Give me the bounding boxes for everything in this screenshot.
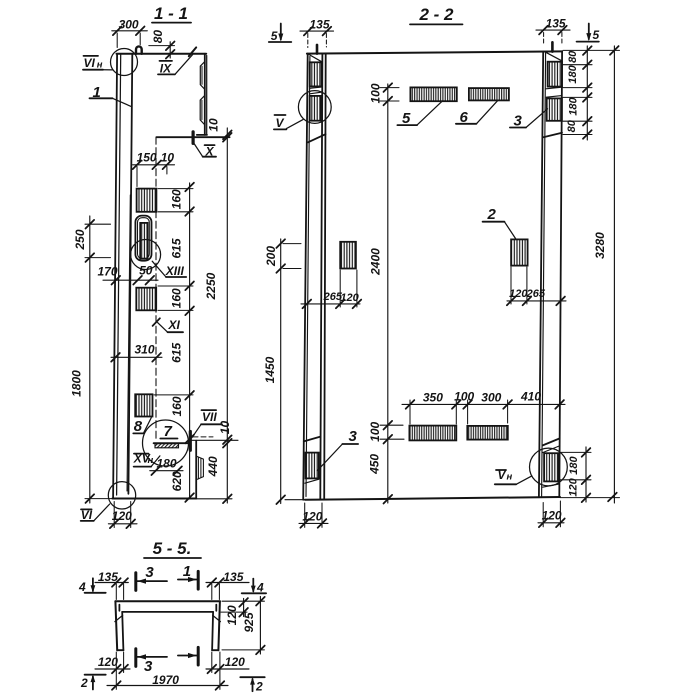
svg-text:3: 3 xyxy=(349,428,358,445)
svg-text:135: 135 xyxy=(223,570,243,584)
svg-text:300: 300 xyxy=(481,390,501,404)
svg-text:2 - 2: 2 - 2 xyxy=(418,5,454,24)
svg-text:615: 615 xyxy=(169,238,183,258)
svg-text:300: 300 xyxy=(119,18,139,32)
svg-text:180: 180 xyxy=(567,96,579,115)
svg-text:2400: 2400 xyxy=(368,248,382,276)
svg-text:100: 100 xyxy=(368,421,382,441)
svg-text:80: 80 xyxy=(151,30,165,44)
svg-text:80: 80 xyxy=(566,119,578,132)
svg-text:2: 2 xyxy=(487,206,497,223)
svg-text:450: 450 xyxy=(368,454,382,475)
svg-text:135: 135 xyxy=(309,18,329,32)
svg-text:1450: 1450 xyxy=(263,356,277,383)
svg-text:160: 160 xyxy=(169,288,183,308)
svg-text:160: 160 xyxy=(169,189,183,209)
svg-text:XI: XI xyxy=(168,318,181,332)
svg-text:3280: 3280 xyxy=(593,232,607,259)
svg-text:170: 170 xyxy=(97,265,117,279)
svg-text:160: 160 xyxy=(170,396,184,416)
svg-text:5 - 5.: 5 - 5. xyxy=(153,539,192,558)
svg-text:1 - 1: 1 - 1 xyxy=(154,4,188,23)
svg-text:120: 120 xyxy=(225,655,245,669)
svg-text:2: 2 xyxy=(80,676,88,690)
svg-text:н: н xyxy=(507,472,513,483)
svg-text:615: 615 xyxy=(169,342,183,362)
svg-text:VI: VI xyxy=(84,56,96,70)
svg-text:10: 10 xyxy=(218,421,232,435)
svg-text:250: 250 xyxy=(73,229,87,250)
svg-text:120: 120 xyxy=(225,605,239,625)
svg-text:100: 100 xyxy=(369,83,383,103)
svg-text:10: 10 xyxy=(206,118,220,132)
svg-text:10: 10 xyxy=(161,151,175,165)
svg-text:VII: VII xyxy=(202,410,217,424)
svg-text:5: 5 xyxy=(593,28,600,42)
svg-text:120: 120 xyxy=(302,509,322,523)
svg-text:1800: 1800 xyxy=(69,370,83,397)
svg-text:3: 3 xyxy=(145,564,154,581)
svg-text:180: 180 xyxy=(568,455,580,474)
svg-text:440: 440 xyxy=(206,456,220,477)
svg-text:135: 135 xyxy=(98,570,118,584)
svg-text:620: 620 xyxy=(170,471,184,491)
svg-text:IX: IX xyxy=(160,61,172,75)
svg-text:8: 8 xyxy=(134,418,143,435)
svg-text:80: 80 xyxy=(567,50,579,63)
svg-text:180: 180 xyxy=(567,64,579,83)
svg-text:410: 410 xyxy=(520,390,541,404)
svg-text:180: 180 xyxy=(156,457,176,471)
svg-text:XIII: XIII xyxy=(165,264,185,278)
svg-text:200: 200 xyxy=(264,246,278,267)
svg-text:120: 120 xyxy=(567,477,579,496)
svg-text:925: 925 xyxy=(242,612,256,632)
svg-text:2: 2 xyxy=(255,680,263,694)
svg-text:7: 7 xyxy=(164,423,173,440)
svg-text:1970: 1970 xyxy=(152,673,179,687)
svg-text:350: 350 xyxy=(423,390,443,404)
svg-text:2250: 2250 xyxy=(204,272,218,300)
svg-text:V: V xyxy=(276,116,285,130)
svg-text:120: 120 xyxy=(112,509,132,523)
svg-text:120: 120 xyxy=(98,655,118,669)
svg-text:310: 310 xyxy=(134,343,154,357)
svg-text:120: 120 xyxy=(509,288,528,300)
